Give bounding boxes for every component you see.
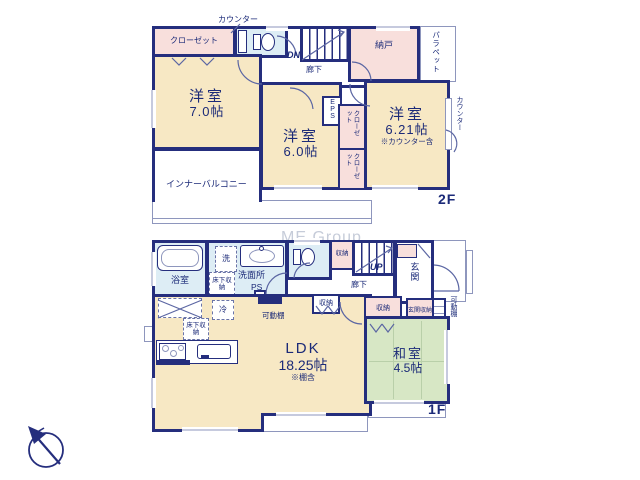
counter-top-label: カウンター [218,15,258,24]
hallway-1f-label: 廊下 [351,280,367,289]
up-label: UP [370,262,383,272]
floor-1f-label: 1F [428,401,446,417]
hallway-2f-label: 廊下 [306,65,322,74]
floor-2f-label: 2F [438,191,456,207]
north-arrow-icon [14,418,78,478]
door-arcs-2f [148,14,460,226]
floor-plan: パラペット クローゼット 納戸 洋室 7.0帖 洋室 6.0帖 洋室 6.21帖… [0,0,640,480]
dn-label: DN [287,50,300,60]
